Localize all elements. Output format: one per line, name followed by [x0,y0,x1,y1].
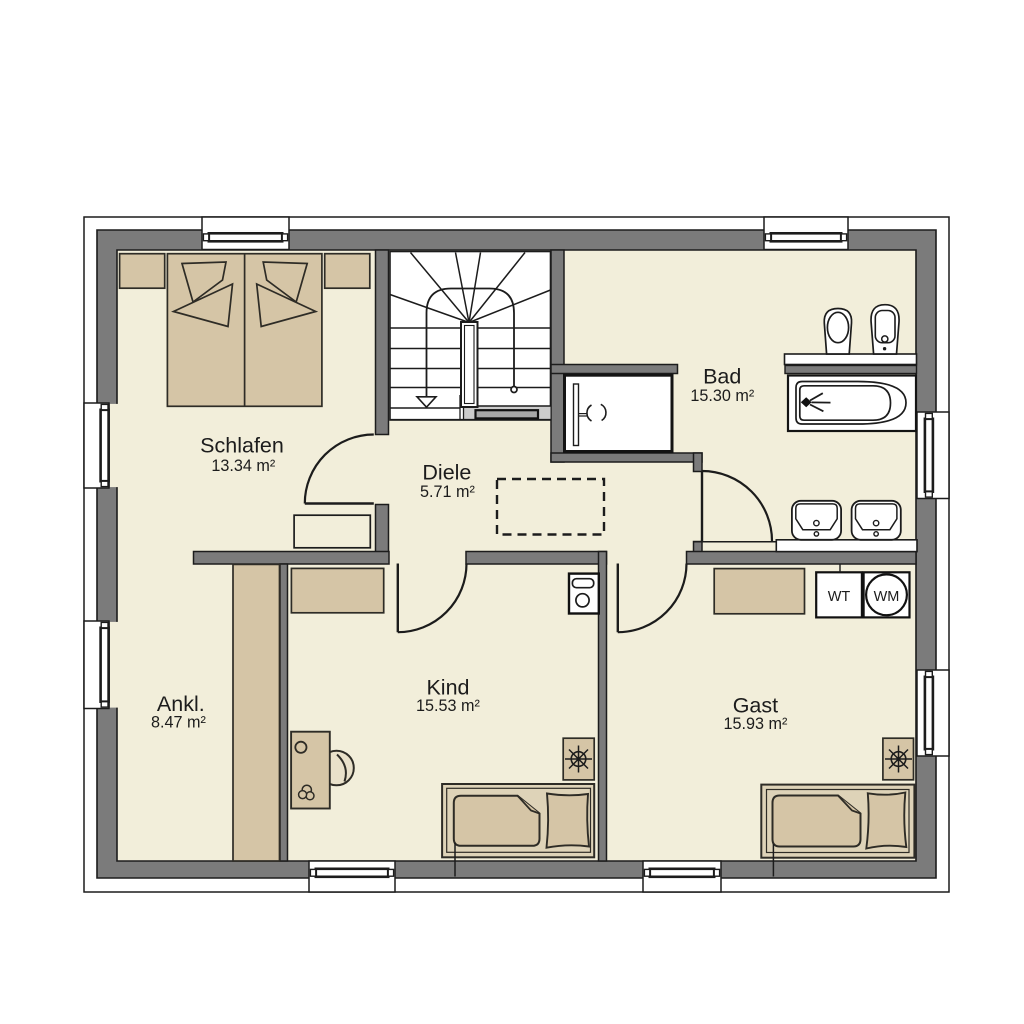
svg-text:Ankl.: Ankl. [157,692,205,716]
svg-text:13.34 m²: 13.34 m² [211,457,275,475]
svg-text:15.53 m²: 15.53 m² [416,697,480,715]
svg-text:8.47 m²: 8.47 m² [151,714,206,732]
svg-text:Bad: Bad [703,364,741,388]
svg-text:Kind: Kind [426,676,469,700]
svg-text:Schlafen: Schlafen [200,433,284,457]
svg-text:WM: WM [874,589,900,605]
svg-text:WT: WT [828,589,851,605]
svg-text:15.93 m²: 15.93 m² [723,715,787,733]
svg-text:5.71 m²: 5.71 m² [420,483,475,501]
svg-text:Gast: Gast [733,693,778,717]
svg-text:15.30 m²: 15.30 m² [690,387,754,405]
svg-text:Diele: Diele [422,460,471,484]
